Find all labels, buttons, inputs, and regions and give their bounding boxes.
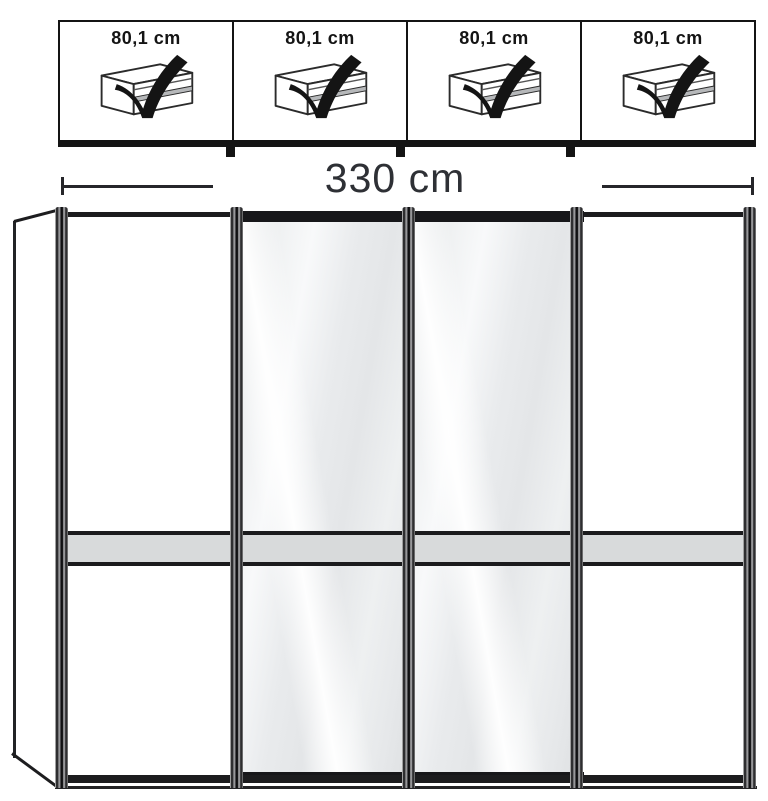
wardrobe-door-4-panel bbox=[577, 217, 747, 773]
spec-divider-tick bbox=[566, 146, 575, 157]
total-width-label: 330 cm bbox=[280, 156, 510, 201]
door-width-label: 80,1 cm bbox=[285, 29, 355, 49]
drawer-checkmark-icon bbox=[442, 52, 546, 120]
spec-row: 80,1 cm 80,1 cm 80,1 cm bbox=[58, 20, 756, 142]
spec-divider-tick bbox=[226, 146, 235, 157]
wardrobe-door-2-mirror bbox=[235, 217, 407, 773]
door-stile-2 bbox=[230, 207, 243, 788]
side-panel-top-edge bbox=[14, 209, 58, 223]
door-stile-5 bbox=[743, 207, 756, 788]
door-stile-4 bbox=[570, 207, 583, 788]
wardrobe-door-3-mirror bbox=[407, 217, 577, 773]
dimension-line-right bbox=[602, 185, 752, 188]
door-stile-3 bbox=[402, 207, 415, 788]
drawer-checkmark-icon bbox=[616, 52, 720, 120]
spec-row-bottom-bar bbox=[58, 140, 756, 147]
drawer-checkmark-icon bbox=[268, 52, 372, 120]
dimension-line-left bbox=[62, 185, 213, 188]
door-width-label: 80,1 cm bbox=[111, 29, 181, 49]
wardrobe-door-1-panel bbox=[60, 217, 235, 773]
spec-cell-3: 80,1 cm bbox=[408, 22, 582, 140]
side-panel-bottom-edge bbox=[11, 752, 59, 789]
spec-cell-2: 80,1 cm bbox=[234, 22, 408, 140]
wardrobe-dimension-diagram: 80,1 cm 80,1 cm 80,1 cm bbox=[0, 0, 768, 801]
spec-cell-1: 80,1 cm bbox=[60, 22, 234, 140]
door-stile-1 bbox=[55, 207, 68, 788]
door-width-label: 80,1 cm bbox=[459, 29, 529, 49]
dimension-end-tick-right bbox=[751, 177, 754, 195]
drawer-checkmark-icon bbox=[94, 52, 198, 120]
spec-cell-4: 80,1 cm bbox=[582, 22, 754, 140]
side-panel-outer-edge bbox=[13, 221, 16, 758]
door-width-label: 80,1 cm bbox=[633, 29, 703, 49]
